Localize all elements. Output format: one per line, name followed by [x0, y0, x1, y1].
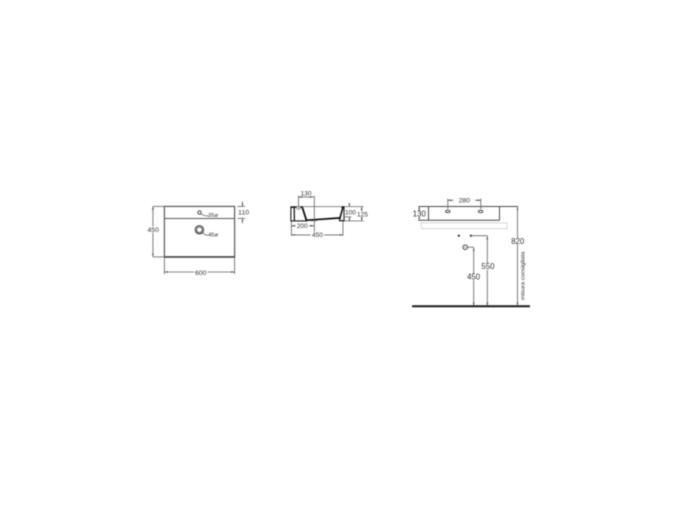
svg-text:100: 100: [345, 209, 356, 216]
svg-text:35ø: 35ø: [208, 213, 218, 219]
svg-text:550: 550: [481, 262, 495, 271]
svg-text:110: 110: [238, 209, 249, 216]
svg-text:misura consigliata: misura consigliata: [520, 251, 526, 300]
svg-text:130: 130: [301, 191, 312, 198]
svg-text:600: 600: [195, 270, 207, 277]
svg-text:820: 820: [511, 237, 525, 246]
svg-text:125: 125: [357, 212, 368, 219]
svg-text:45ø: 45ø: [208, 233, 218, 239]
svg-text:450: 450: [312, 232, 323, 239]
svg-text:450: 450: [467, 273, 481, 282]
svg-text:200: 200: [297, 223, 308, 230]
svg-text:450: 450: [148, 227, 160, 234]
svg-text:280: 280: [459, 198, 471, 205]
svg-text:130: 130: [413, 209, 427, 218]
